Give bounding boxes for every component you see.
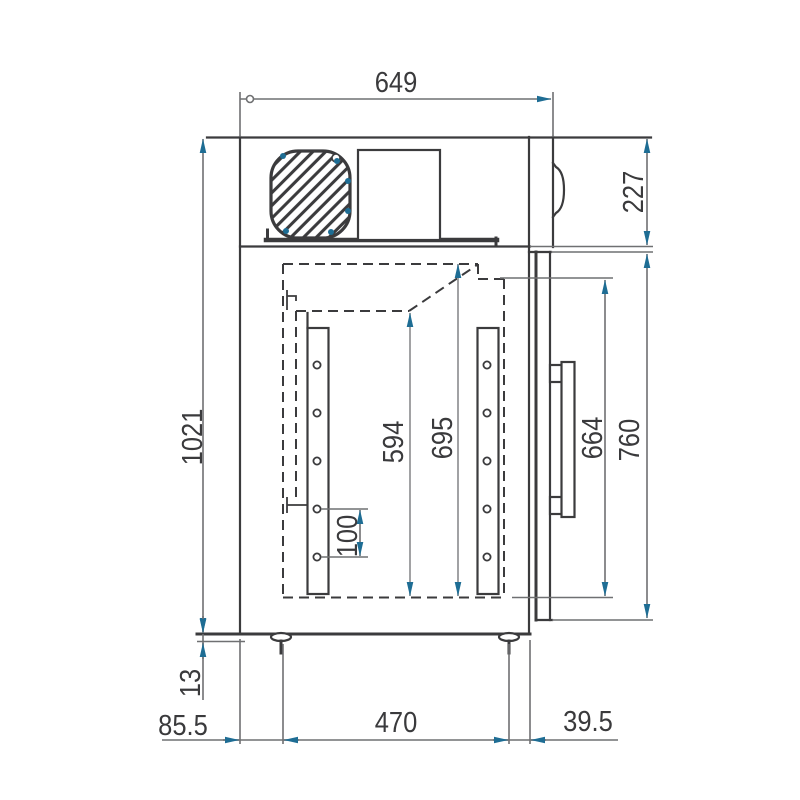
refrigerated-cabinet-side-section-drawing: 649 1021 227 760 664 695 594 100 bbox=[0, 0, 800, 800]
compressor bbox=[271, 151, 351, 238]
dim-label-door-height: 760 bbox=[612, 419, 645, 462]
dim-unit-height: 227 bbox=[530, 139, 653, 247]
shelf-rail-right bbox=[478, 328, 499, 594]
dim-label-hole-pitch: 100 bbox=[330, 515, 363, 558]
dim-label-depth-top: 649 bbox=[375, 65, 418, 98]
electrical-box bbox=[358, 150, 440, 240]
door bbox=[529, 252, 552, 620]
technical-drawing-page: 649 1021 227 760 664 695 594 100 bbox=[0, 0, 800, 800]
dim-label-overall-height: 1021 bbox=[175, 409, 208, 466]
dim-label-door-inner-height: 664 bbox=[575, 417, 608, 460]
dim-door-inner-height: 664 bbox=[500, 278, 613, 598]
dim-label-interior-back-height: 594 bbox=[376, 421, 409, 464]
dim-interior-height: 695 bbox=[425, 264, 458, 596]
dim-label-foot-spacing: 470 bbox=[375, 705, 418, 738]
dim-label-foot-offset-back: 85.5 bbox=[158, 708, 208, 741]
shelf-rail-left bbox=[308, 313, 329, 594]
dim-label-interior-height: 695 bbox=[425, 417, 458, 460]
panel-bulge bbox=[553, 163, 564, 217]
dim-overall-height: 1021 bbox=[175, 139, 208, 632]
dim-foot-height: 13 bbox=[173, 616, 245, 700]
dim-interior-back-height: 594 bbox=[376, 313, 410, 596]
dim-label-foot-offset-front: 39.5 bbox=[563, 704, 613, 737]
dim-depth-top: 649 bbox=[240, 65, 553, 137]
dim-label-foot-height: 13 bbox=[173, 669, 206, 697]
dim-label-unit-height: 227 bbox=[616, 171, 649, 214]
door-handle bbox=[550, 362, 575, 517]
dim-foot-chain: 85.5 470 39.5 bbox=[158, 639, 618, 744]
foot-back bbox=[271, 633, 291, 653]
unit-front-panel bbox=[553, 137, 564, 247]
